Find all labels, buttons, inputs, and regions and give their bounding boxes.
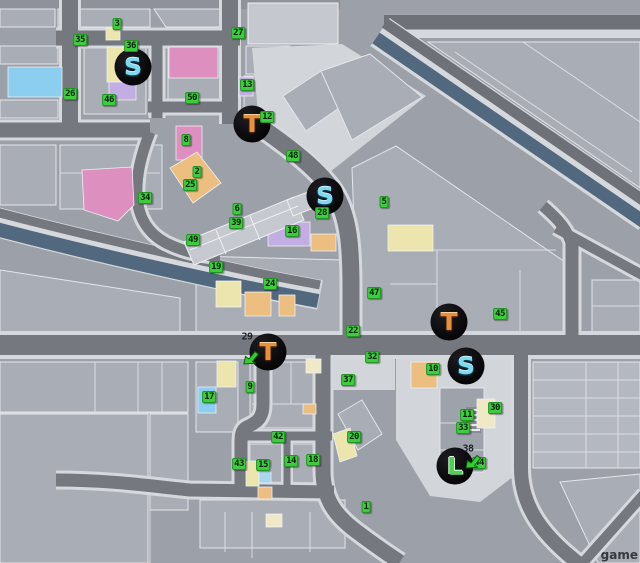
- map-marker-26: 26: [63, 88, 77, 100]
- map-marker-49: 49: [186, 234, 200, 246]
- map-marker-18: 18: [306, 454, 320, 466]
- map-marker-2: 2: [193, 166, 202, 178]
- map-marker-33: 33: [456, 422, 470, 434]
- map-marker-48: 48: [286, 150, 300, 162]
- icon-letter: S: [457, 355, 475, 378]
- icon-letter: T: [440, 311, 457, 334]
- icon-letter: T: [259, 341, 276, 364]
- map-marker-42: 42: [271, 431, 285, 443]
- map-marker-32: 32: [365, 351, 379, 363]
- map-marker-20: 20: [347, 431, 361, 443]
- icon-letter: S: [124, 56, 142, 79]
- map-marker-22: 22: [346, 325, 360, 337]
- map-marker-1: 1: [362, 501, 371, 513]
- map-marker-10: 10: [426, 363, 440, 375]
- city-map: STSTTSL335362713264650128482253456283916…: [0, 0, 640, 563]
- map-marker-39: 39: [229, 217, 243, 229]
- map-marker-3: 3: [113, 18, 122, 30]
- map-marker-11: 11: [460, 409, 474, 421]
- map-marker-47: 47: [367, 287, 381, 299]
- map-overlay: STSTTSL335362713264650128482253456283916…: [0, 0, 640, 563]
- shop-icon-t-east: T: [431, 304, 468, 341]
- direction-arrow-icon: [463, 451, 483, 471]
- map-marker-46: 46: [102, 94, 116, 106]
- map-marker-9: 9: [246, 381, 255, 393]
- map-marker-25: 25: [183, 179, 197, 191]
- map-marker-12: 12: [260, 111, 274, 123]
- map-marker-36: 36: [124, 40, 138, 52]
- direction-arrow-icon: [241, 347, 261, 367]
- map-marker-30: 30: [488, 402, 502, 414]
- shop-icon-s-northwest: S: [115, 49, 152, 86]
- map-marker-5: 5: [380, 196, 389, 208]
- map-marker-50: 50: [185, 92, 199, 104]
- map-marker-27: 27: [231, 27, 245, 39]
- icon-letter: T: [243, 113, 260, 136]
- icon-letter: L: [447, 455, 463, 478]
- map-marker-15: 15: [256, 459, 270, 471]
- map-marker-28: 28: [315, 207, 329, 219]
- map-marker-16: 16: [285, 225, 299, 237]
- map-label-29: 29: [239, 331, 254, 344]
- map-marker-43: 43: [232, 458, 246, 470]
- map-marker-24: 24: [263, 278, 277, 290]
- shop-icon-s-southeast: S: [448, 348, 485, 385]
- map-marker-14: 14: [284, 455, 298, 467]
- map-marker-19: 19: [209, 261, 223, 273]
- icon-letter: S: [316, 185, 334, 208]
- map-marker-17: 17: [202, 391, 216, 403]
- map-marker-37: 37: [341, 374, 355, 386]
- map-marker-35: 35: [73, 34, 87, 46]
- map-marker-13: 13: [240, 79, 254, 91]
- map-marker-8: 8: [182, 134, 191, 146]
- map-marker-45: 45: [493, 308, 507, 320]
- watermark: game: [601, 548, 638, 562]
- map-marker-34: 34: [138, 192, 152, 204]
- map-marker-6: 6: [233, 203, 242, 215]
